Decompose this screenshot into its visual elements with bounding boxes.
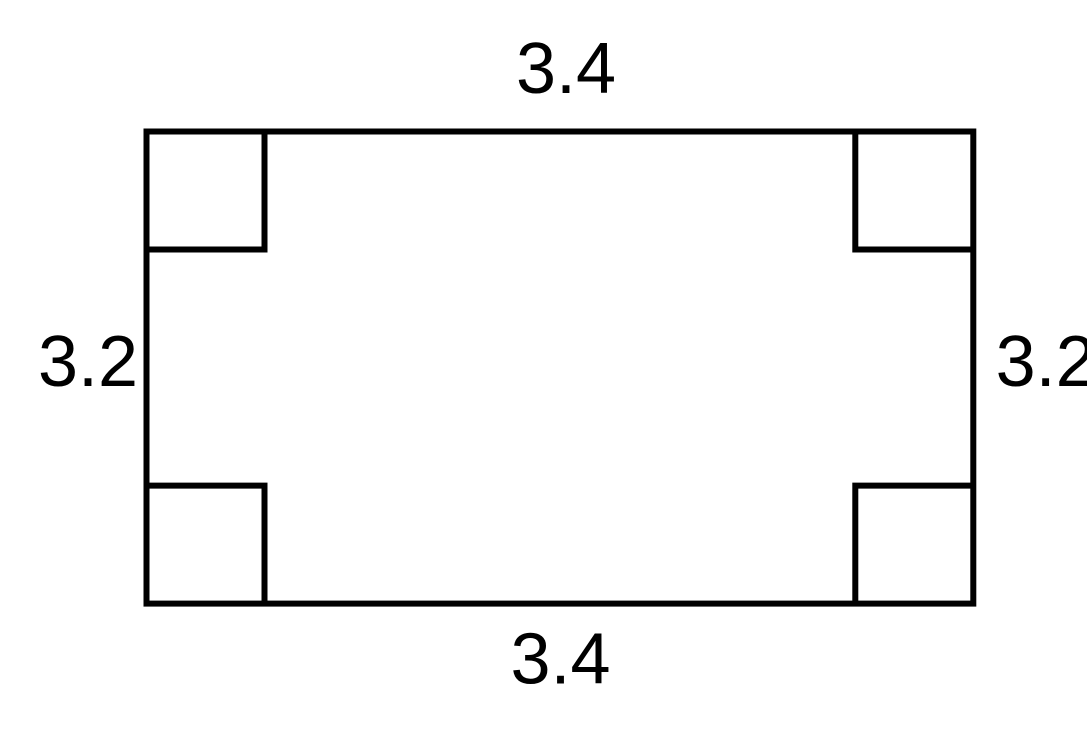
- svg-text:3.2: 3.2: [38, 322, 138, 402]
- svg-text:3.4: 3.4: [516, 29, 616, 109]
- svg-text:3.4: 3.4: [510, 620, 610, 700]
- svg-text:3.2: 3.2: [996, 322, 1087, 402]
